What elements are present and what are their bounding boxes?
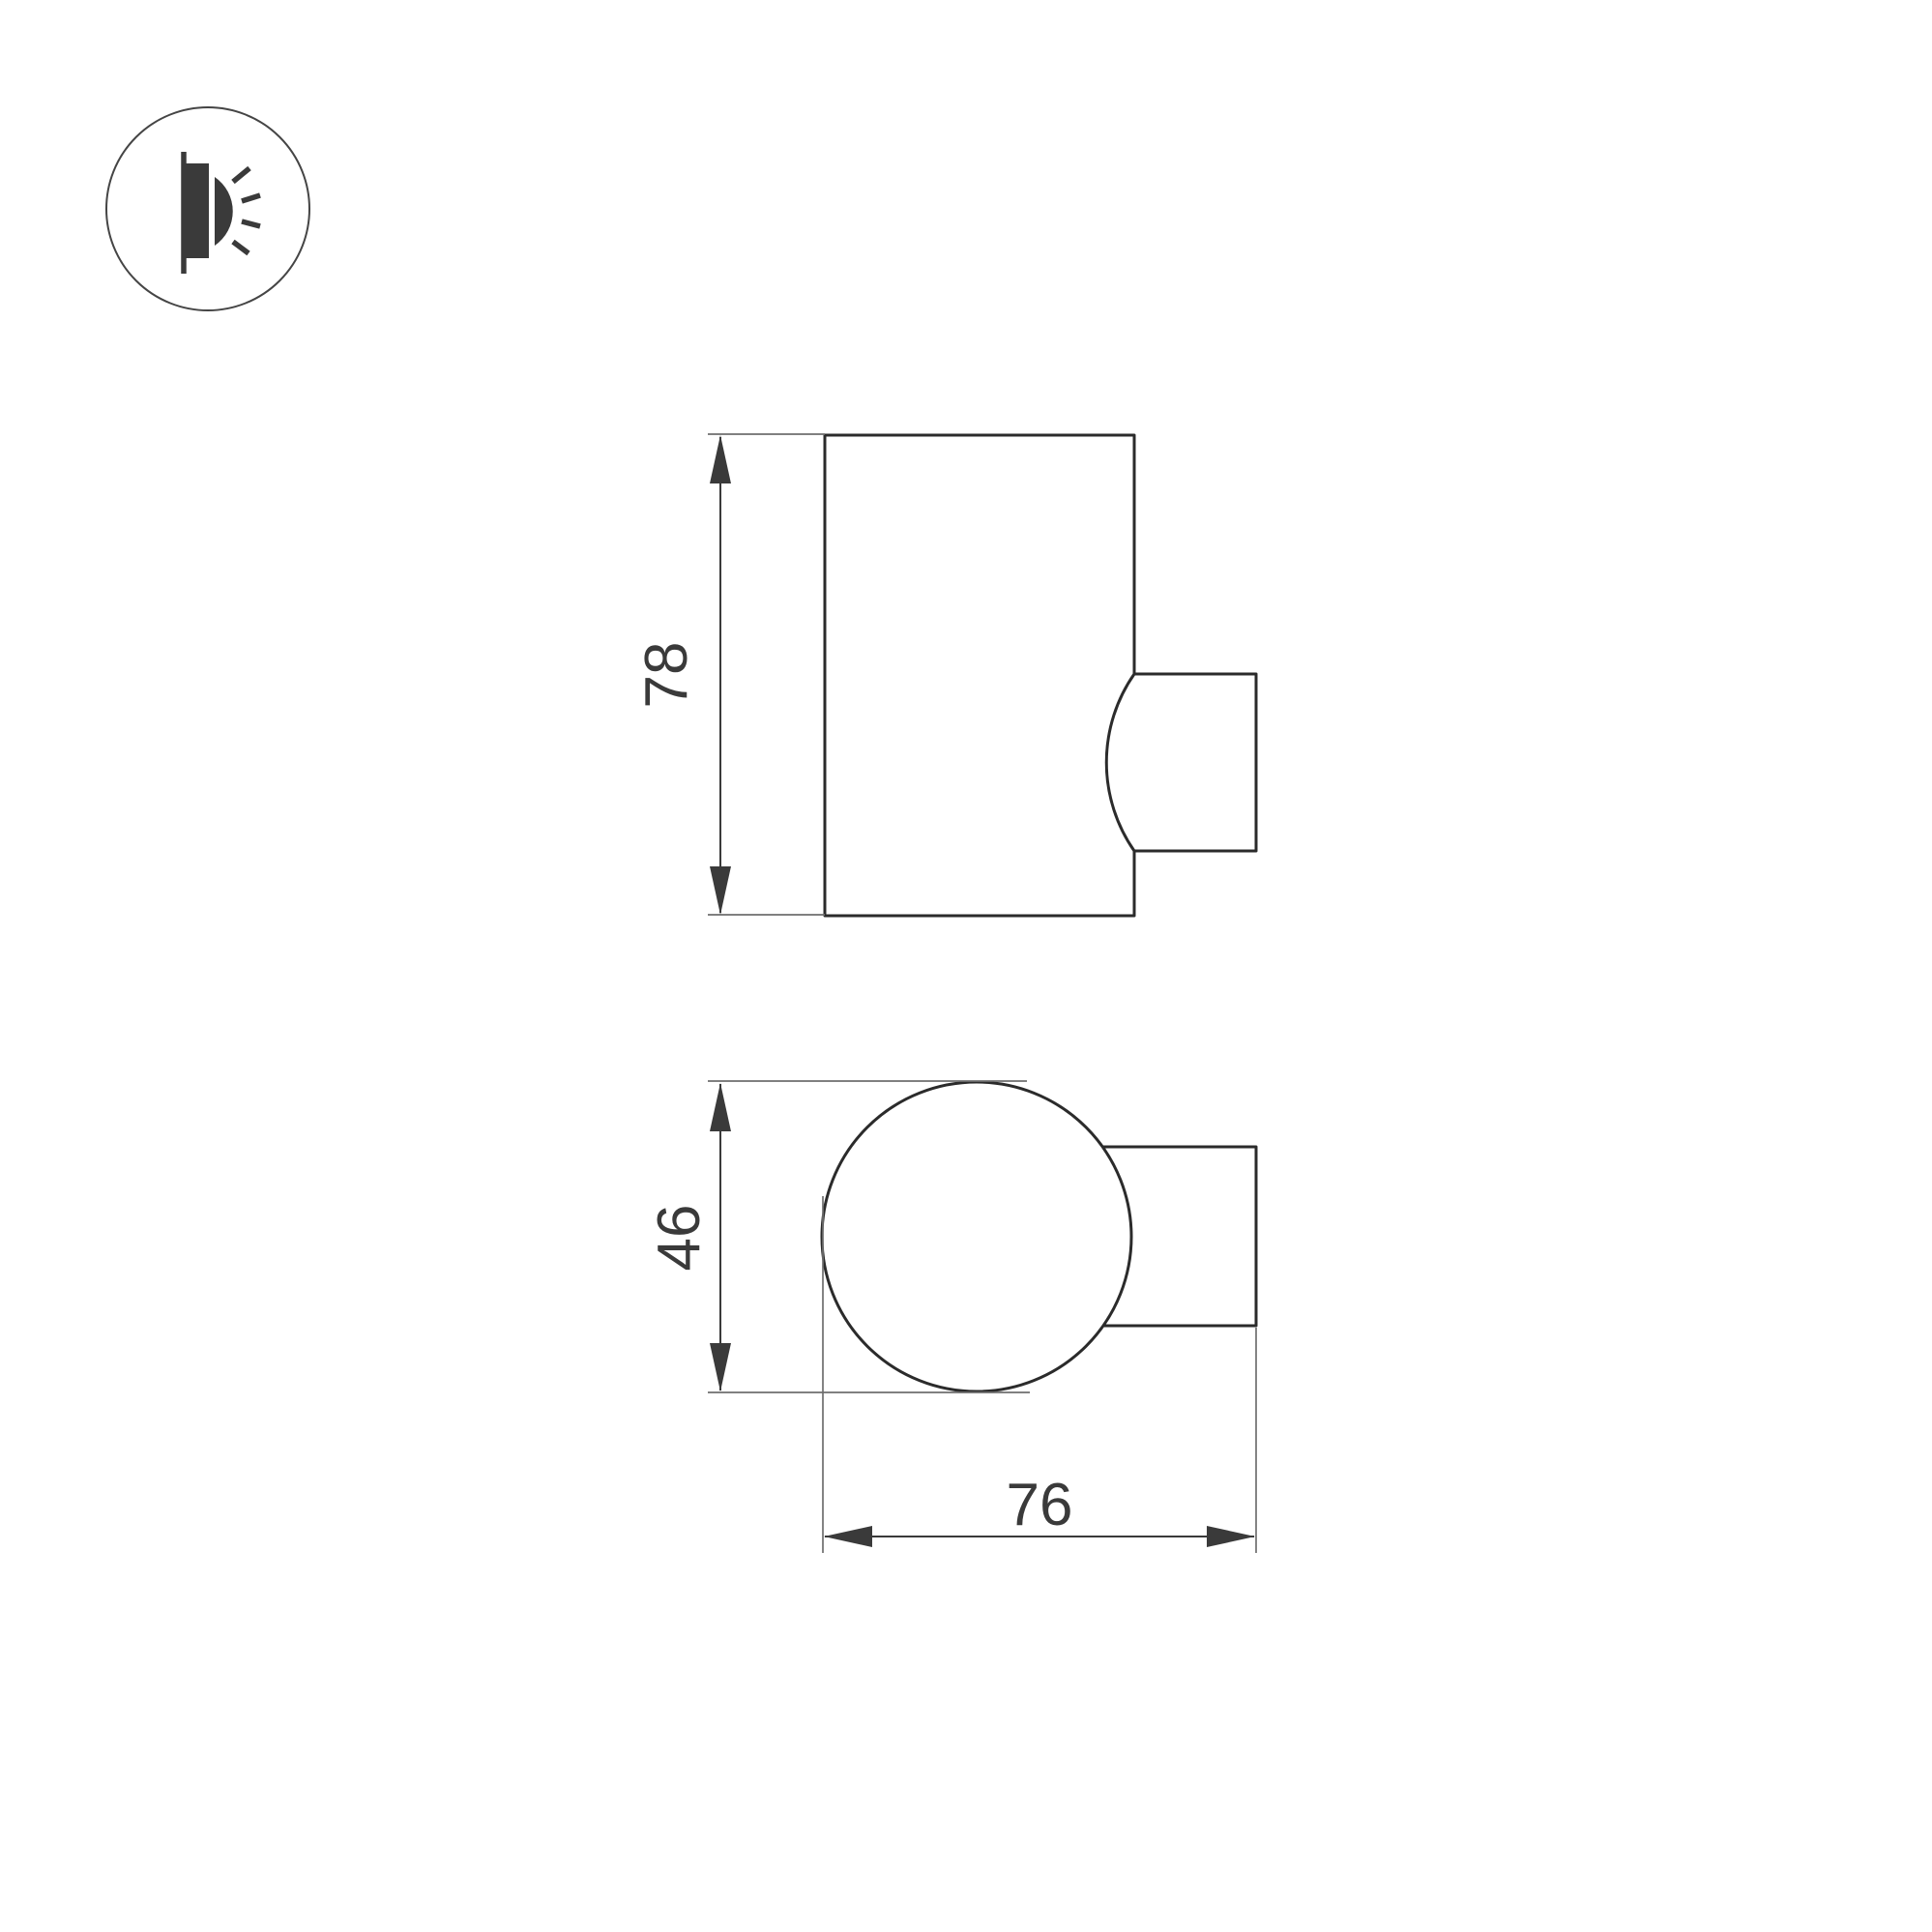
icon-lamp-body	[186, 163, 209, 258]
dimension-drawing: 78 46 76	[0, 0, 1932, 1932]
light-ray-icon	[233, 168, 249, 182]
arrowhead-left-icon	[824, 1526, 872, 1547]
arrowhead-right-icon	[1207, 1526, 1255, 1547]
arrowhead-up-icon	[710, 1083, 731, 1131]
arrowhead-up-icon	[710, 435, 731, 483]
light-ray-icon	[233, 242, 249, 253]
side-view	[825, 435, 1256, 916]
side-view-wall-mount	[1106, 674, 1256, 851]
light-ray-icon	[242, 221, 260, 226]
arrowhead-down-icon	[710, 866, 731, 915]
depth-dimension-label: 46	[646, 1205, 713, 1272]
height-dimension: 78	[633, 434, 825, 915]
top-view-ball	[822, 1082, 1131, 1391]
wall-lamp-icon	[106, 107, 309, 310]
icon-lamp-lens	[215, 177, 233, 246]
width-dimension-label: 76	[1007, 1472, 1073, 1538]
arrowhead-down-icon	[710, 1343, 731, 1391]
height-dimension-label: 78	[633, 642, 700, 709]
light-ray-icon	[242, 195, 260, 201]
icon-light-rays	[233, 168, 260, 253]
side-view-body	[825, 435, 1134, 916]
top-view	[822, 1082, 1256, 1391]
dimension-drawing-page: 78 46 76	[0, 0, 1932, 1932]
